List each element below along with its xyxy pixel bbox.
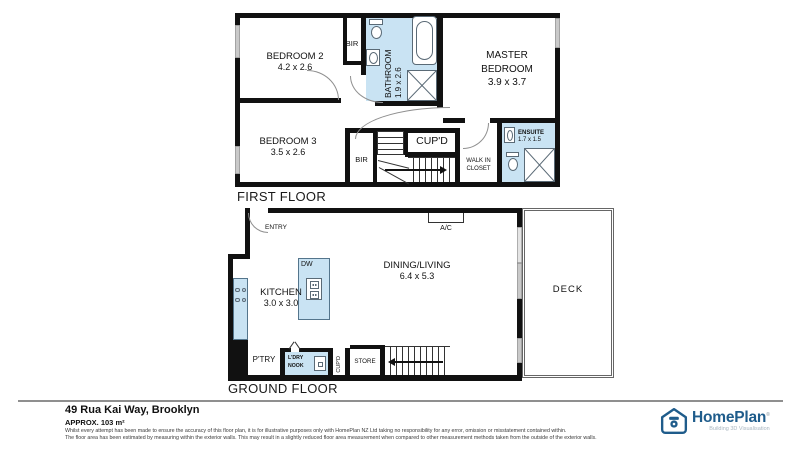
- room-name: CLOSET: [460, 166, 497, 174]
- wall-segment: [497, 123, 502, 187]
- wall-segment: [228, 340, 248, 381]
- room-label-bathroom: BATHROOM 1.9 x 2.6: [383, 20, 404, 98]
- room-dims: 3.0 x 3.0: [249, 298, 313, 309]
- pantry-label: P'TRY: [248, 355, 280, 365]
- room-name: KITCHEN: [249, 287, 313, 298]
- window: [517, 227, 522, 263]
- property-address: 49 Rua Kai Way, Brooklyn: [65, 404, 199, 416]
- room-name: BATHROOM: [383, 20, 393, 98]
- sink-basin: [369, 52, 378, 64]
- stair-direction-line: [393, 361, 443, 363]
- bath-basin: [416, 21, 433, 60]
- room-dims: 1.7 x 1.5: [518, 137, 555, 144]
- shower-icon: [524, 148, 555, 182]
- room-label-cupboard: CUP'D: [409, 135, 455, 148]
- house-camera-icon: [660, 407, 688, 435]
- room-name: NOOK: [288, 363, 304, 371]
- room-name: BEDROOM: [447, 63, 567, 77]
- cupboard-label: CUP'D: [333, 352, 345, 376]
- room-dims: 1.9 x 2.6: [394, 20, 404, 98]
- door-gap: [291, 348, 299, 352]
- room-name: MASTER: [447, 49, 567, 63]
- room-name: WALK IN: [460, 158, 497, 166]
- wall-segment: [235, 182, 560, 187]
- room-label-ensuite: ENSUITE 1.7 x 1.5: [518, 130, 555, 144]
- room-label-kitchen: KITCHEN 3.0 x 3.0: [249, 287, 313, 309]
- room-dims: 6.4 x 5.3: [357, 271, 477, 282]
- sink-icon: [366, 49, 380, 66]
- door-arc: [307, 70, 339, 100]
- wall-segment: [235, 98, 341, 103]
- toilet-icon: [506, 152, 519, 157]
- washer-icon: [314, 356, 326, 371]
- room-name: BEDROOM 3: [238, 136, 338, 147]
- entry-label: ENTRY: [265, 224, 287, 232]
- cooktop-icon: [234, 285, 247, 305]
- floor-plan-sheet: BEDROOM 2 4.2 x 2.6 BIR BATHROOM 1.9 x 2…: [0, 0, 800, 450]
- air-con-unit: [428, 213, 464, 223]
- wall-segment: [245, 208, 250, 257]
- washer-door: [318, 362, 323, 367]
- room-dims: 3.5 x 2.6: [238, 147, 338, 158]
- stair-winder-line: [378, 160, 409, 169]
- dishwasher-label: DW: [301, 261, 313, 269]
- room-label-dining-living: DINING/LIVING 6.4 x 5.3: [357, 260, 477, 282]
- room-name: BEDROOM 2: [245, 51, 345, 62]
- toilet-icon: [371, 26, 382, 39]
- brand-name: HomePlan®: [692, 410, 770, 426]
- room-name: ENSUITE: [518, 130, 555, 137]
- shower-icon: [407, 70, 437, 101]
- room-dims: 4.2 x 2.6: [245, 62, 345, 73]
- room-name: DINING/LIVING: [357, 260, 477, 271]
- first-floor-title: FIRST FLOOR: [237, 189, 326, 204]
- deck-label: DECK: [522, 284, 614, 295]
- window: [517, 338, 522, 363]
- stair-direction-arrow: [440, 166, 447, 174]
- sink-basin: [507, 130, 513, 141]
- room-name: L'DRY: [288, 355, 304, 363]
- disclaimer-line-1: Whilst every attempt has been made to en…: [65, 428, 566, 434]
- floor-area: APPROX. 103 m²: [65, 418, 125, 427]
- wall-segment: [443, 118, 465, 123]
- wall-segment: [268, 208, 522, 213]
- store-label: STORE: [350, 358, 380, 365]
- homeplan-logo: HomePlan® Building 3D Visualisation: [660, 407, 770, 435]
- stair-direction-line: [385, 169, 441, 171]
- room-label-bir-upper: BIR: [342, 39, 362, 48]
- window: [555, 18, 560, 48]
- sink-icon: [504, 127, 515, 143]
- air-con-label: A/C: [426, 225, 466, 233]
- wall-segment: [280, 348, 285, 377]
- first-floor-plan: BEDROOM 2 4.2 x 2.6 BIR BATHROOM 1.9 x 2…: [235, 13, 560, 187]
- room-label-master-bedroom: MASTER BEDROOM 3.9 x 3.7: [447, 49, 567, 90]
- window: [235, 25, 240, 58]
- bath-icon: [412, 16, 437, 65]
- stair-direction-arrow: [388, 358, 395, 366]
- room-label-bedroom2: BEDROOM 2 4.2 x 2.6: [245, 51, 345, 73]
- staircase-upper-run: [377, 131, 404, 155]
- ground-floor-plan: ENTRY A/C DINING/LIVING 6.4 x 5.3 KITCHE…: [227, 205, 618, 387]
- brand-tagline: Building 3D Visualisation: [692, 426, 770, 432]
- wall-segment: [437, 13, 443, 108]
- toilet-icon: [369, 19, 383, 25]
- laundry-nook-label: L'DRY NOOK: [288, 355, 304, 371]
- room-label-bedroom3: BEDROOM 3 3.5 x 2.6: [238, 136, 338, 158]
- footer-divider: [18, 400, 783, 402]
- wall-segment: [350, 345, 380, 349]
- room-name: CUP'D: [336, 356, 343, 373]
- disclaimer-line-2: The floor area has been estimated by mea…: [65, 435, 597, 441]
- ground-floor-title: GROUND FLOOR: [228, 381, 338, 396]
- wall-segment: [235, 13, 560, 18]
- door-arc: [463, 123, 489, 149]
- brand-mark: ®: [766, 412, 769, 418]
- room-label-bir-lower: BIR: [350, 155, 373, 164]
- room-dims: 3.9 x 3.7: [447, 76, 567, 90]
- toilet-icon: [508, 158, 518, 171]
- room-label-walk-in-closet: WALK IN CLOSET: [460, 158, 497, 174]
